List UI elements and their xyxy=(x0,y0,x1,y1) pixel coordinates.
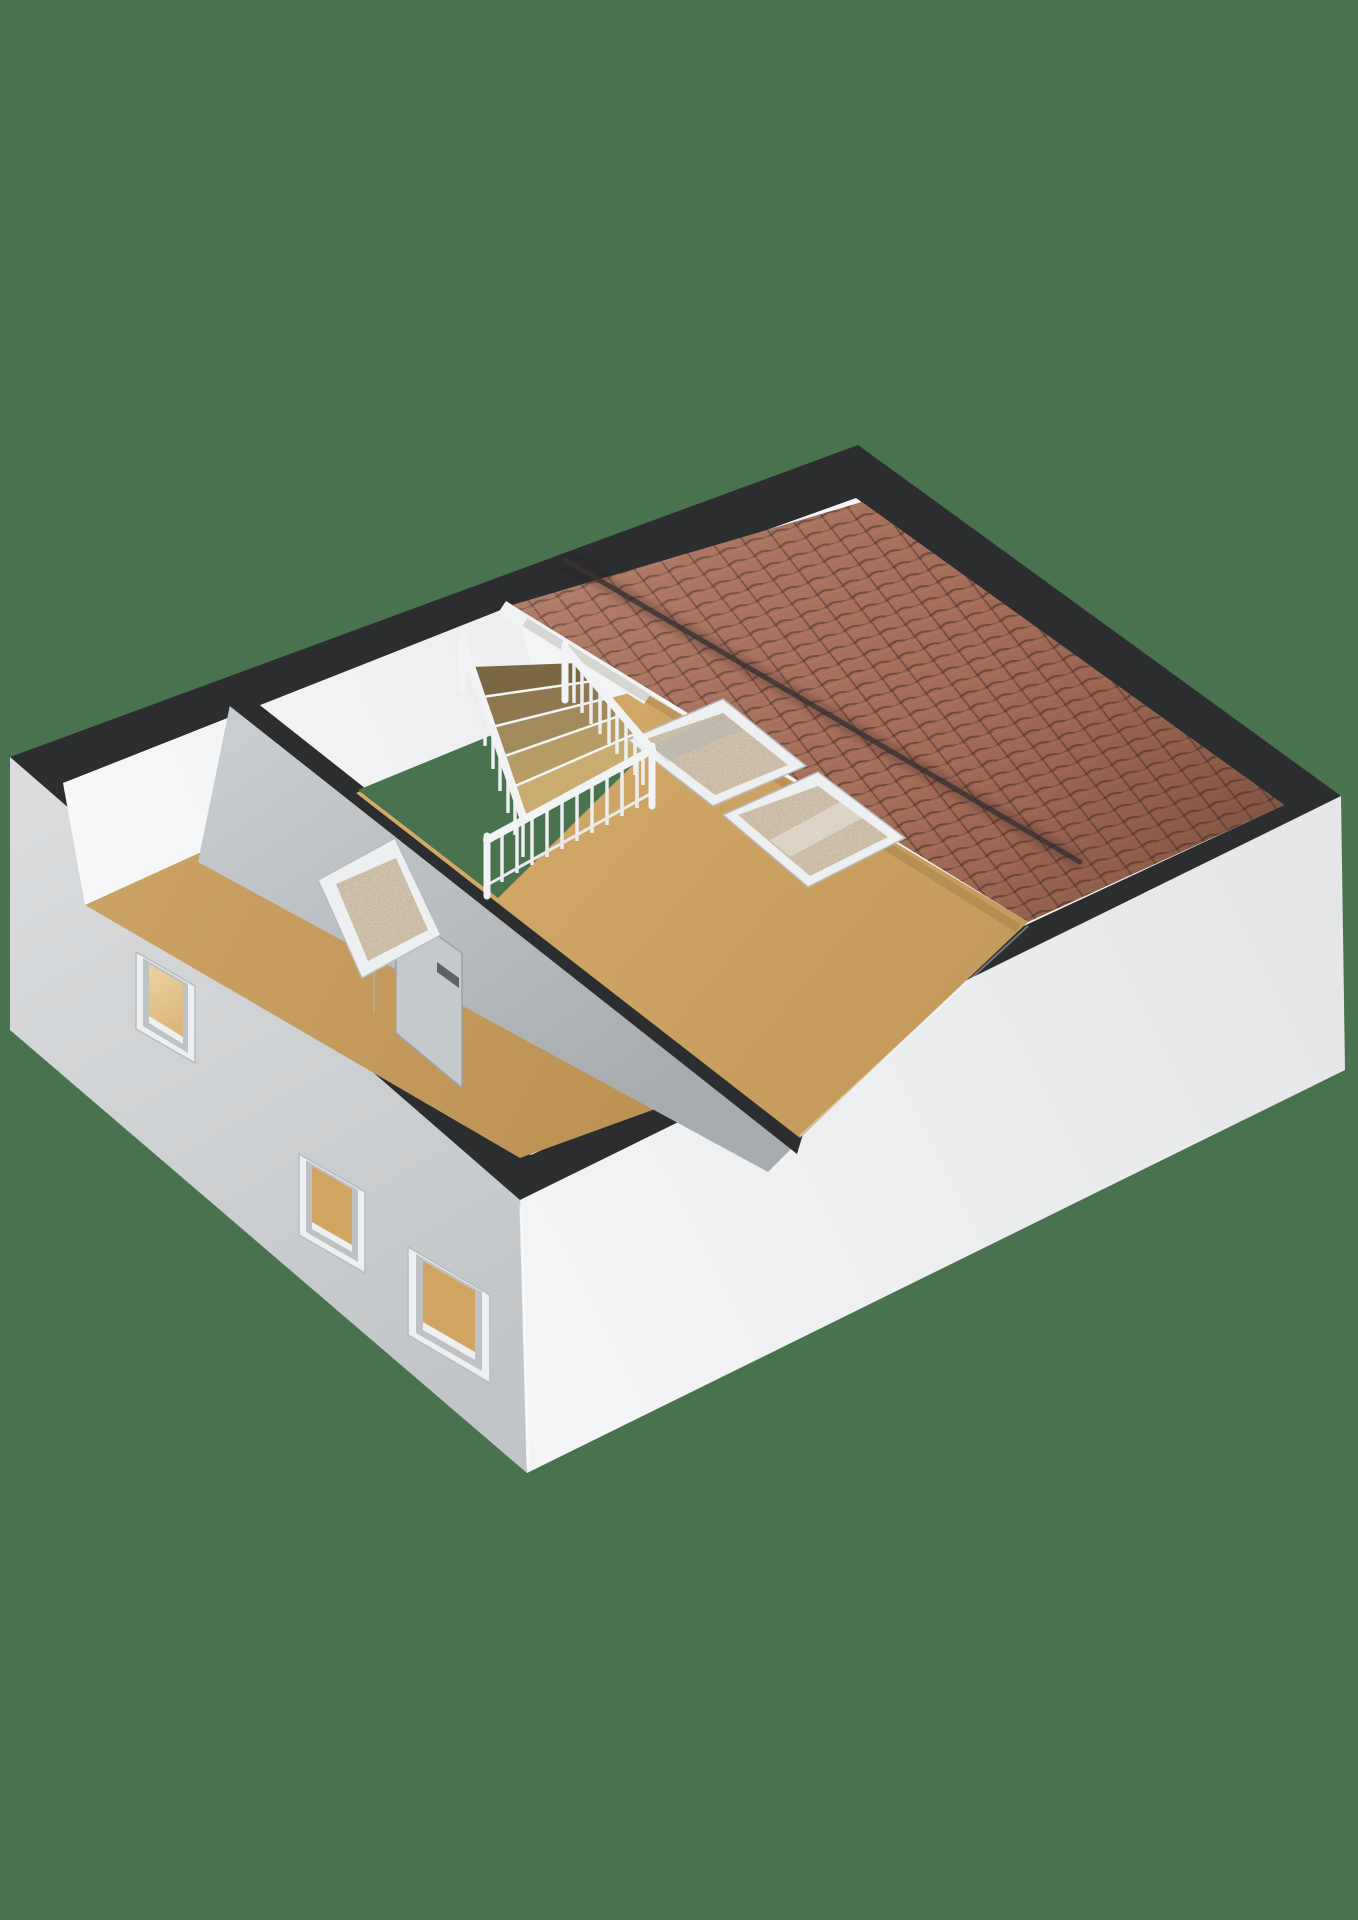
floorplan-shapes xyxy=(0,0,1358,1920)
attic-3d-floorplan xyxy=(0,0,1358,1920)
floorplan-stage xyxy=(0,0,1358,1920)
